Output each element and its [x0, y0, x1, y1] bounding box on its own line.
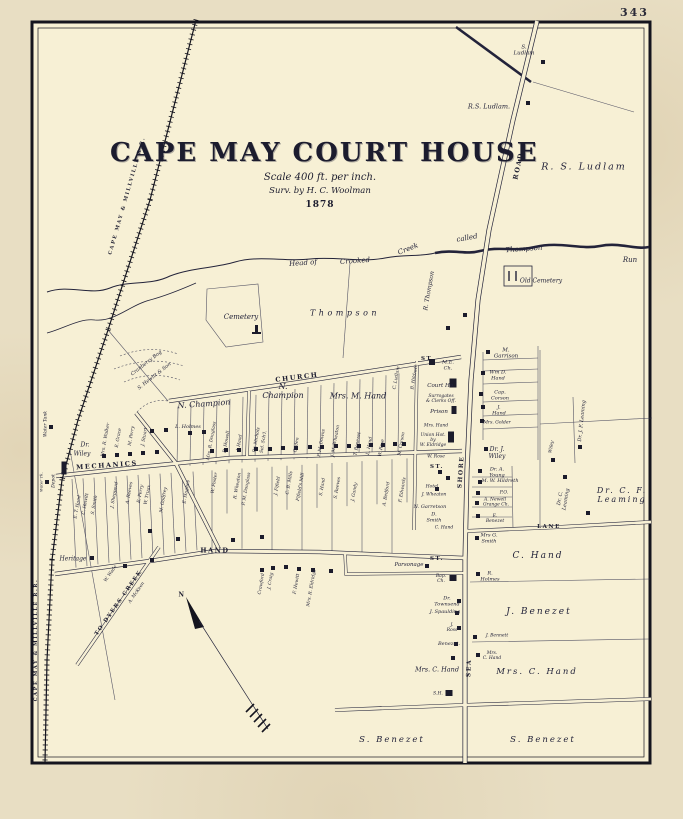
- map-label: Benezet.: [438, 642, 460, 648]
- map-label: Heritage: [60, 557, 87, 564]
- map-label: J. Fifield: [274, 476, 282, 495]
- map-label: Mrs G. Smith: [480, 533, 497, 545]
- map-label: N. Garretson: [414, 505, 447, 511]
- map-label: SEA: [466, 659, 474, 678]
- map-label: Dr. C. Leaming: [556, 487, 571, 511]
- map-label: Prison: [430, 409, 448, 415]
- map-label: P. M. Downs: [317, 429, 327, 457]
- map-label: J. Shepperd: [110, 482, 120, 509]
- map-label: J. Wheaton: [422, 492, 447, 497]
- map-label: J. Spaulding: [430, 610, 460, 616]
- map-label: M. Garrison: [494, 348, 518, 361]
- map-label: ST.: [421, 356, 435, 362]
- atlas-page: 343: [0, 0, 683, 819]
- map-label: L. Hand: [366, 437, 374, 456]
- map-label: Wiley: [74, 452, 91, 459]
- map-label: Surrogates & Clerks Off.: [426, 394, 456, 404]
- map-label: C. Hand: [435, 525, 454, 530]
- map-label: E. T. Hand: [73, 495, 82, 519]
- map-label: W. Truax: [144, 485, 153, 506]
- map-label: J. Benezet: [506, 607, 571, 617]
- map-label: J. Bennett: [486, 633, 508, 638]
- map-label: Depot: [51, 474, 56, 488]
- title-block: CAPE MAY COURT HOUSE Scale 400 ft. per i…: [110, 138, 530, 210]
- map-label: Wm D. Hand: [490, 370, 507, 382]
- map-label: J. Hand: [236, 434, 244, 451]
- map-label: J. Ross: [447, 623, 458, 633]
- map-label: HAND: [200, 547, 229, 554]
- map-label: Dr. J. Wiley: [489, 447, 506, 461]
- map-label: E. Grace: [115, 428, 124, 448]
- map-label: R.S. Ludlam.: [468, 103, 510, 110]
- map-label: R. Thompson: [423, 271, 437, 311]
- map-label: S. Benezet: [359, 736, 425, 746]
- map-label: W. Wade: [103, 565, 118, 584]
- map-label: R. S. Ludlam: [541, 163, 627, 174]
- map-label: Dr. A. Young: [489, 467, 505, 479]
- map-label: S.H.: [433, 691, 443, 696]
- map-label: Mrs. R. Walker: [100, 423, 111, 457]
- map-label: ST.: [430, 556, 444, 562]
- map-label: E. Hughes: [182, 480, 191, 504]
- map-label: SHORE: [457, 455, 466, 488]
- map-label: N: [178, 593, 185, 600]
- map-label: Dr.: [81, 443, 90, 450]
- map-label: Cap. Corson: [491, 390, 509, 402]
- map-label: called: [456, 232, 478, 244]
- map-label: Mrs. R. Eldridge: [306, 569, 318, 607]
- map-label: J. Hand: [492, 405, 506, 417]
- map-label: W. Rose: [378, 439, 386, 457]
- map-label: Fifield's Mill: [296, 473, 306, 502]
- map-label: N. Champion: [262, 382, 303, 400]
- map-label: A. Bedford: [382, 482, 391, 507]
- map-surveyor: Surv. by H. C. Woolman: [110, 186, 530, 196]
- map-label: J. Craig: [267, 572, 275, 590]
- map-label: Head of: [289, 258, 317, 268]
- map-label: Ogden: [293, 437, 301, 453]
- map-label: M. W. Hildreth: [481, 479, 518, 485]
- map-label: Mrs. Hand: [424, 423, 448, 428]
- map-label: Creek: [397, 241, 420, 256]
- map-label: Sel. Sch'l.: [259, 430, 268, 453]
- map-label: N. Champion: [177, 398, 230, 411]
- map-label: Thompson: [505, 244, 542, 255]
- map-label: Crooked: [340, 256, 370, 266]
- map-label: S. Benezet: [510, 736, 576, 746]
- map-label: Mrs. C. Hand: [496, 668, 578, 678]
- map-label: C. Hewitt: [82, 493, 91, 515]
- map-label: Water Tk.: [40, 472, 45, 492]
- map-label: Old Cemetery: [520, 279, 562, 286]
- map-label: J. Stuart: [141, 427, 149, 446]
- map-label: Dr. Townsend: [434, 596, 459, 608]
- map-label: S. Ludlam: [514, 45, 535, 58]
- map-label: Mrs. M. Hand: [330, 391, 387, 400]
- map-label: M.E. Ch.: [442, 360, 454, 372]
- map-label: TO DYERS CREEK: [94, 569, 144, 637]
- map-label: Crawford: [258, 573, 267, 595]
- map-label: Parsonage: [394, 562, 423, 568]
- map-label: Water Tank: [43, 411, 48, 437]
- map-label: CAPE MAY & MILLVILLE R.R.: [34, 579, 40, 702]
- map-label: Bap. Ch.: [436, 574, 446, 584]
- map-label: LANE: [537, 524, 561, 530]
- map-label: Cemetery: [224, 313, 259, 321]
- map-label: Mrs. C. Hand: [483, 651, 502, 661]
- map-label: C. B. Mills: [285, 471, 294, 495]
- map-label: Mrs. R. Douglass: [206, 421, 218, 460]
- map-label: W. Foster: [211, 472, 220, 494]
- map-label: M. Corson: [397, 432, 406, 456]
- map-label: Dr. J. F. Leaming: [578, 400, 588, 442]
- map-label: T. Benezet: [353, 432, 362, 456]
- map-label: ST.: [430, 464, 444, 470]
- map-label: F. Hewitt: [293, 573, 302, 594]
- map-label: Mrs. Golder: [483, 420, 510, 425]
- map-label: L. Holmes: [175, 425, 201, 431]
- map-label: Thompson: [310, 308, 380, 317]
- map-label: J. M. Wheaton: [331, 425, 342, 457]
- map-label: M. Godfrey: [159, 487, 169, 513]
- map-label: A. Reeves: [126, 482, 135, 505]
- map-label: Hotel: [426, 484, 439, 489]
- map-label: R. Howell: [223, 431, 232, 454]
- map-year: 1878: [110, 200, 530, 210]
- map-label: R. Holmes: [480, 571, 499, 583]
- map-label: Run: [623, 256, 637, 264]
- map-label: F. Edwards: [398, 477, 407, 503]
- map-label: W. Rose: [427, 454, 445, 459]
- map-label: Dr. C. F. Leaming: [597, 486, 647, 504]
- map-label: Court Ho.: [427, 383, 454, 389]
- map-labels: S. LudlamR.S. Ludlam.R. S. LudlamROADHea…: [0, 0, 683, 819]
- map-label: Grange Ch.: [483, 502, 509, 507]
- map-label: Mrs. C. Hand: [415, 666, 459, 673]
- map-label: M. Perry: [128, 426, 137, 446]
- map-label: P. M. Douglass: [242, 472, 253, 506]
- map-label: R. Wheaton: [233, 472, 243, 499]
- map-label: Union Hot. by W. Eldridge: [420, 433, 446, 449]
- map-label: Wiley: [548, 440, 555, 453]
- map-scale: Scale 400 ft. per inch.: [110, 172, 530, 183]
- map-label: MECHANICS: [76, 460, 138, 472]
- map-label: P.O.: [500, 490, 508, 495]
- map-label: S. Hand: [319, 478, 327, 497]
- map-label: C. Ludlam: [392, 366, 401, 390]
- map-label: D. Smith: [427, 512, 442, 524]
- map-label: S. Smith: [91, 495, 99, 515]
- map-label: C. Hand: [512, 551, 563, 561]
- map-label: B. Hildreth: [410, 364, 419, 390]
- map-label: E. Benezet: [486, 514, 504, 524]
- map-label: S. Reeves: [334, 477, 343, 500]
- map-label: J. Gandy: [351, 482, 359, 502]
- map-title: CAPE MAY COURT HOUSE: [110, 138, 530, 168]
